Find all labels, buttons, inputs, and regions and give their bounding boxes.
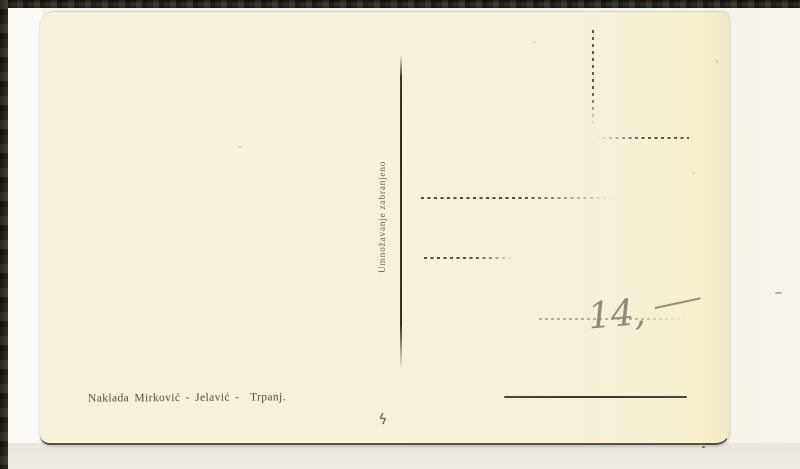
stamp-box-left-dotted-edge bbox=[592, 30, 594, 126]
scan-margin-right bbox=[729, 8, 800, 469]
dust-speck bbox=[716, 60, 718, 63]
address-dotted-line-1 bbox=[421, 197, 619, 199]
address-dotted-line-2 bbox=[424, 257, 516, 259]
stamp-box-bottom-dotted-edge bbox=[596, 137, 689, 139]
photo-dark-edge-left bbox=[0, 0, 8, 469]
dust-speck bbox=[533, 41, 535, 43]
dust-speck bbox=[692, 172, 695, 174]
scanned-postcard-photo: Umnožavanje zabranjeno Naklada Mirković … bbox=[0, 0, 800, 469]
scan-margin-bottom bbox=[7, 443, 800, 469]
handwritten-price: 14,— bbox=[586, 289, 684, 338]
handwritten-price-dash: — bbox=[649, 279, 706, 324]
publisher-imprint: Naklada Mirković - Jelavić - Trpanj. bbox=[88, 391, 286, 404]
dust-speck bbox=[775, 292, 782, 294]
photo-dark-edge-top bbox=[0, 0, 800, 8]
dust-speck bbox=[702, 446, 705, 448]
postcard-back: Umnožavanje zabranjeno Naklada Mirković … bbox=[40, 11, 730, 445]
center-divider-line bbox=[400, 55, 402, 369]
scan-margin-left bbox=[7, 8, 42, 469]
pencil-squiggle-mark: ϟ bbox=[377, 411, 388, 428]
divider-caption-vertical-text: Umnožavanje zabranjeno bbox=[373, 131, 393, 303]
address-solid-line bbox=[504, 396, 687, 398]
dust-speck bbox=[239, 146, 241, 148]
handwritten-price-number: 14, bbox=[586, 292, 647, 338]
